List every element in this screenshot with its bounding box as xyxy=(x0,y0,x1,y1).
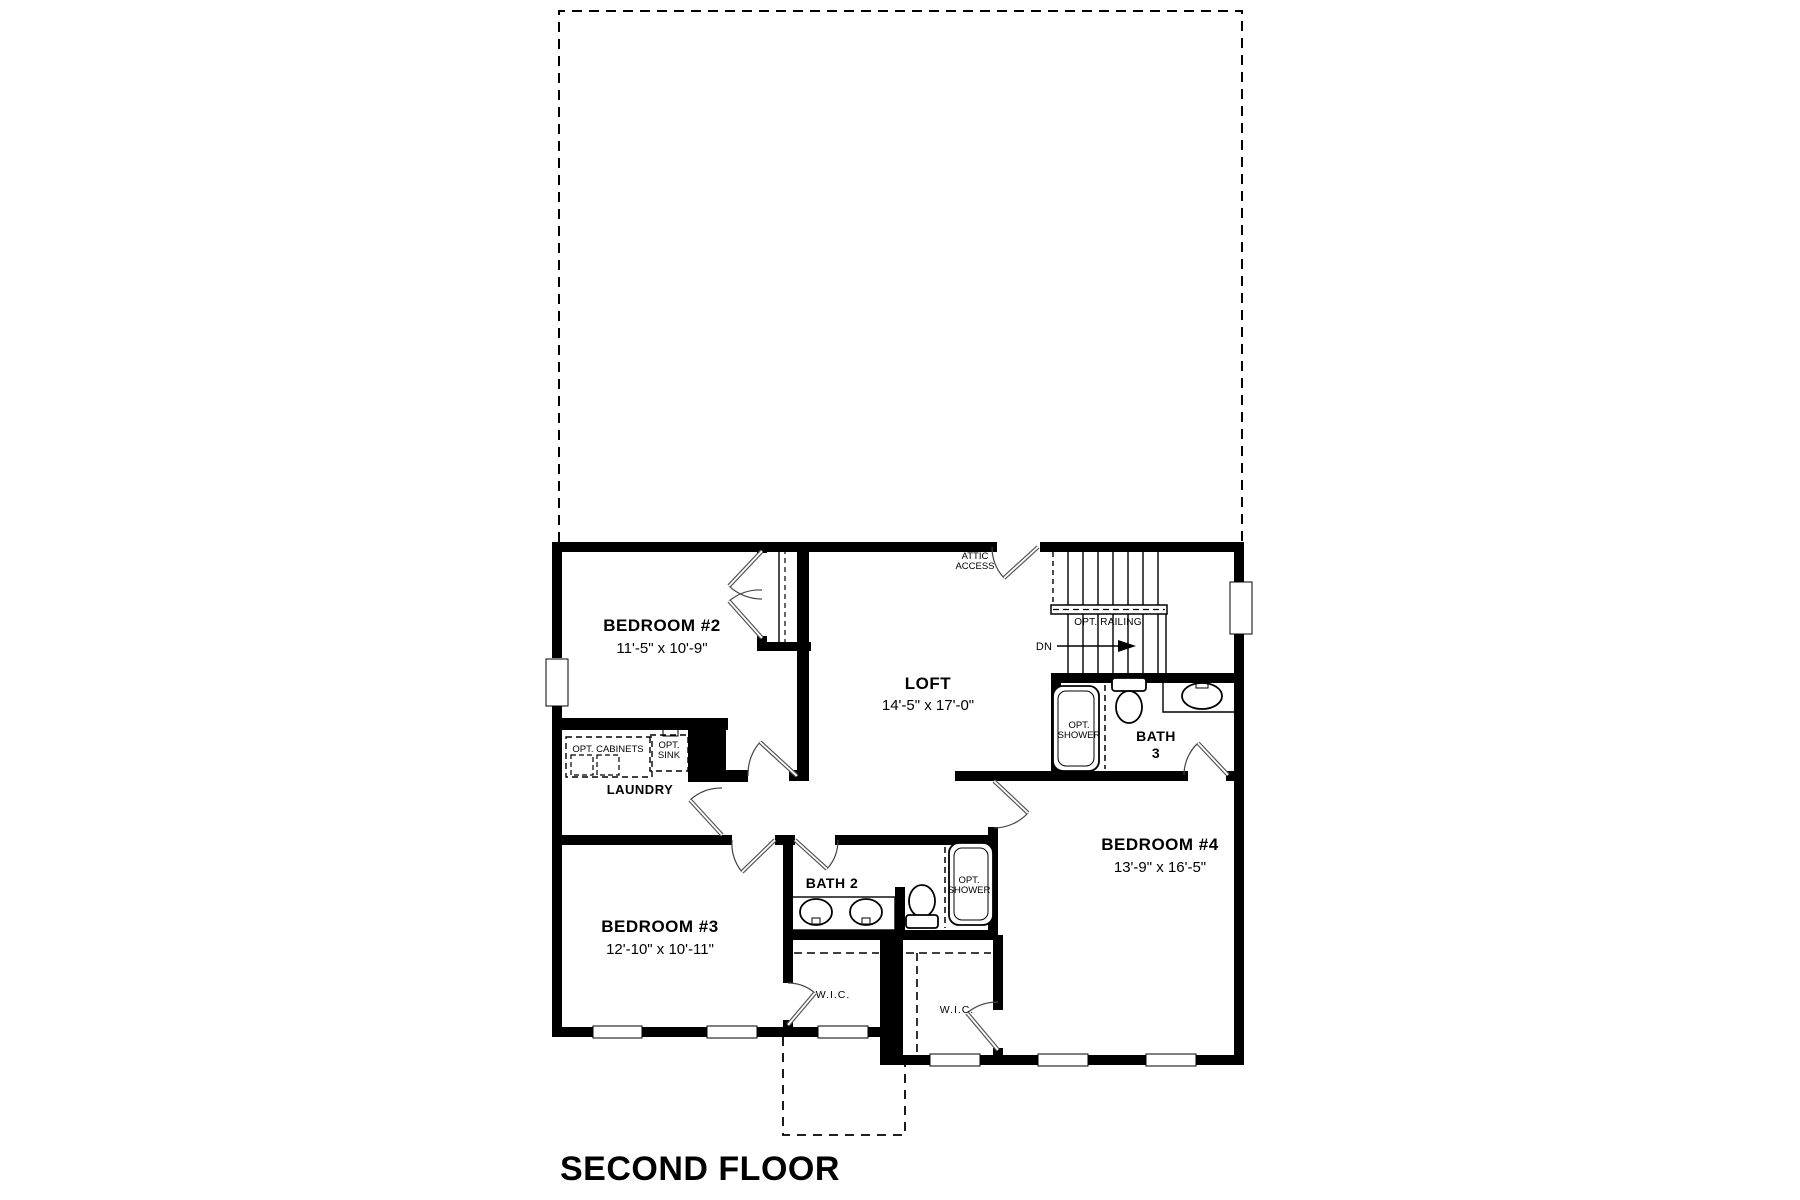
bath2-vanity xyxy=(790,897,895,930)
window-bedroom3-bottom-2 xyxy=(707,1026,757,1038)
note-attic-access-line2: ACCESS xyxy=(955,561,994,572)
floorplan-page: BEDROOM #2 11'-5" x 10'-9" LOFT 14'-5" x… xyxy=(0,0,1800,1200)
room-dims-loft: 14'-5" x 17'-0" xyxy=(882,697,974,714)
window-bedroom3-bottom-1 xyxy=(593,1026,642,1038)
note-down: DN xyxy=(1036,641,1052,653)
room-label-bedroom2: BEDROOM #2 xyxy=(603,616,720,635)
stair-railing-bar xyxy=(1051,605,1167,614)
window-stair-landing-right xyxy=(1230,582,1252,634)
first-floor-below-outline xyxy=(559,11,1242,542)
window-bedroom4-bottom-1 xyxy=(1038,1054,1088,1066)
room-label-bath2: BATH 2 xyxy=(806,875,859,891)
page-title: SECOND FLOOR xyxy=(560,1150,840,1188)
room-label-bedroom3: BEDROOM #3 xyxy=(601,917,718,936)
laundry-door xyxy=(690,788,722,835)
bath2-door xyxy=(795,840,838,869)
room-label-bath3-line2: 3 xyxy=(1152,745,1160,761)
doors xyxy=(690,547,1228,1050)
closet-lines xyxy=(779,549,1105,1052)
stair-treads-upper xyxy=(1068,552,1158,605)
room-dims-bedroom4: 13'-9" x 16'-5" xyxy=(1114,859,1206,876)
room-dims-bedroom2: 11'-5" x 10'-9" xyxy=(616,640,707,657)
opt-cabinets-outline xyxy=(566,737,652,777)
bath3-vanity xyxy=(1163,681,1240,712)
room-dims-bedroom3: 12'-10" x 10'-11" xyxy=(606,941,714,958)
note-opt-cabinets: OPT. CABINETS xyxy=(572,744,643,755)
bath3-toilet xyxy=(1112,678,1146,723)
attic-access-door xyxy=(992,547,1038,578)
loft-door xyxy=(748,742,797,776)
window-wic2-bottom xyxy=(930,1054,980,1066)
bath3-door xyxy=(1184,743,1228,775)
window-wic1-bottom xyxy=(818,1026,868,1038)
window-bedroom4-bottom-2 xyxy=(1146,1054,1196,1066)
room-label-laundry: LAUNDRY xyxy=(607,782,674,797)
down-arrow xyxy=(1057,640,1136,652)
bath2-toilet xyxy=(906,885,938,928)
bedroom4-door xyxy=(994,781,1028,828)
note-opt-railing: OPT. RAILING xyxy=(1074,617,1141,628)
second-floor-plan: BEDROOM #2 11'-5" x 10'-9" LOFT 14'-5" x… xyxy=(0,0,1800,1200)
note-bath2-opt-shower-line2: SHOWER xyxy=(948,885,991,896)
room-label-wic2: W.I.C. xyxy=(940,1004,975,1016)
staircase xyxy=(1051,552,1167,673)
wic1-door xyxy=(788,983,815,1025)
room-label-loft: LOFT xyxy=(905,674,951,693)
room-label-bath3-line1: BATH xyxy=(1136,728,1176,744)
room-label-bedroom4: BEDROOM #4 xyxy=(1101,835,1218,854)
note-opt-sink-line2: SINK xyxy=(658,750,681,761)
bedroom3-door xyxy=(732,840,775,872)
window-bedroom2-left xyxy=(546,659,568,706)
note-bath3-opt-shower-line2: SHOWER xyxy=(1058,730,1101,741)
room-label-wic1: W.I.C. xyxy=(816,989,851,1001)
bedroom2-closet-doors xyxy=(729,551,762,638)
